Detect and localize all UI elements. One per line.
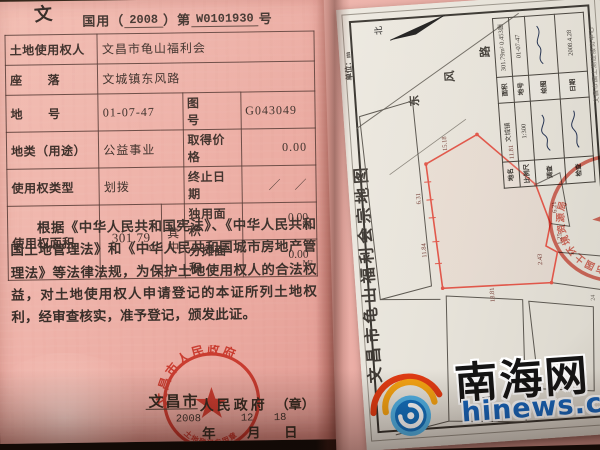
table-row: 座 落 文城镇东风路 [5,61,314,95]
field-label-end-date: 终止日期 [183,166,242,204]
day-unit: 日 [284,421,298,441]
cert-no-form: 国用（ [82,13,124,29]
legal-statement-paragraph: 根据《中华人民共和国宪法》、《中华人民共和国土地管理法》和《中华人民共和国城市房… [10,214,318,330]
cert-no-year: 2008 [124,13,163,29]
table-row: 土地使用权人 文昌市龟山福利会 [5,31,314,65]
issuer-seal-note: （章） [276,394,315,414]
cert-no-suffix: 号 [259,11,273,26]
table-row: 地类（用途） 公益事业 取得价格 0.00 [6,128,315,169]
handwritten-prefix: 文 [33,0,53,27]
hinews-watermark: 南海网 hinews.cn [363,344,600,450]
field-label-right-type: 使用权类型 [7,168,100,206]
map-field-place-label: 地名 [503,161,521,188]
cert-no-mid: ）第 [163,12,191,27]
certificate-photo: 文 国用（2008）第W0101930号 土地使用权人 文昌市龟山福利会 座 落… [0,0,600,450]
field-label-sheet-no: 图 号 [182,92,241,130]
field-value-land-user: 文昌市龟山福利会 [97,31,314,64]
map-field-date-label: 日期 [558,71,589,99]
floral-emblem-watermark [0,352,151,444]
land-bureau-seal: 文昌市国土环境资源局 [532,138,600,298]
dim-top: 15.18 [441,136,449,151]
north-label: 北 [373,26,384,36]
field-label-land-user: 土地使用权人 [5,34,98,65]
field-value-land-class: 公益事业 [99,130,184,168]
field-value-price: 0.00 [241,128,316,166]
field-label-price: 取得价格 [183,129,242,167]
issue-year: 2008 [176,413,201,425]
cert-no-serial: W0101930 [191,11,259,27]
dim-left-lower: 11.84 [420,242,428,258]
certificate-left-page: 文 国用（2008）第W0101930号 土地使用权人 文昌市龟山福利会 座 落… [0,0,338,444]
dim-bottom: 18.81 [489,287,497,302]
field-label-parcel-no: 地 号 [6,94,99,132]
certificate-number-line: 国用（2008）第W0101930号 [82,8,273,31]
signature-scribble [532,19,547,70]
field-value-end-date: ／ ／ [242,165,317,203]
issuer-government: 人民政府 [200,394,268,415]
parcel-number: 24 [590,295,596,301]
field-label-location: 座 落 [5,64,98,95]
map-field-area-label: 面积 [497,76,515,103]
dim-left-upper: 6.31 [415,193,423,205]
map-seal-star-icon [591,197,600,240]
year-unit: 年 [202,422,216,442]
month-unit: 月 [247,421,261,441]
field-label-land-class: 地类（用途） [6,131,99,169]
field-value-sheet-no: G043049 [240,91,315,129]
table-row: 使用权类型 划拨 终止日期 ／ ／ [7,165,316,206]
field-value-right-type: 划拨 [99,167,184,205]
map-field-draw-label: 绘图 [529,73,560,101]
field-value-location: 文城镇东风路 [98,61,315,94]
map-field-parcelno-label: 地号 [513,75,531,102]
table-row: 地 号 01-07-47 图 号 G043049 [6,91,315,132]
field-value-parcel-no: 01-07-47 [98,93,183,131]
hinews-swirl-icon [363,358,457,450]
draw-signature-cell [525,14,558,75]
map-field-date-value: 2008.4.28 [554,12,587,73]
